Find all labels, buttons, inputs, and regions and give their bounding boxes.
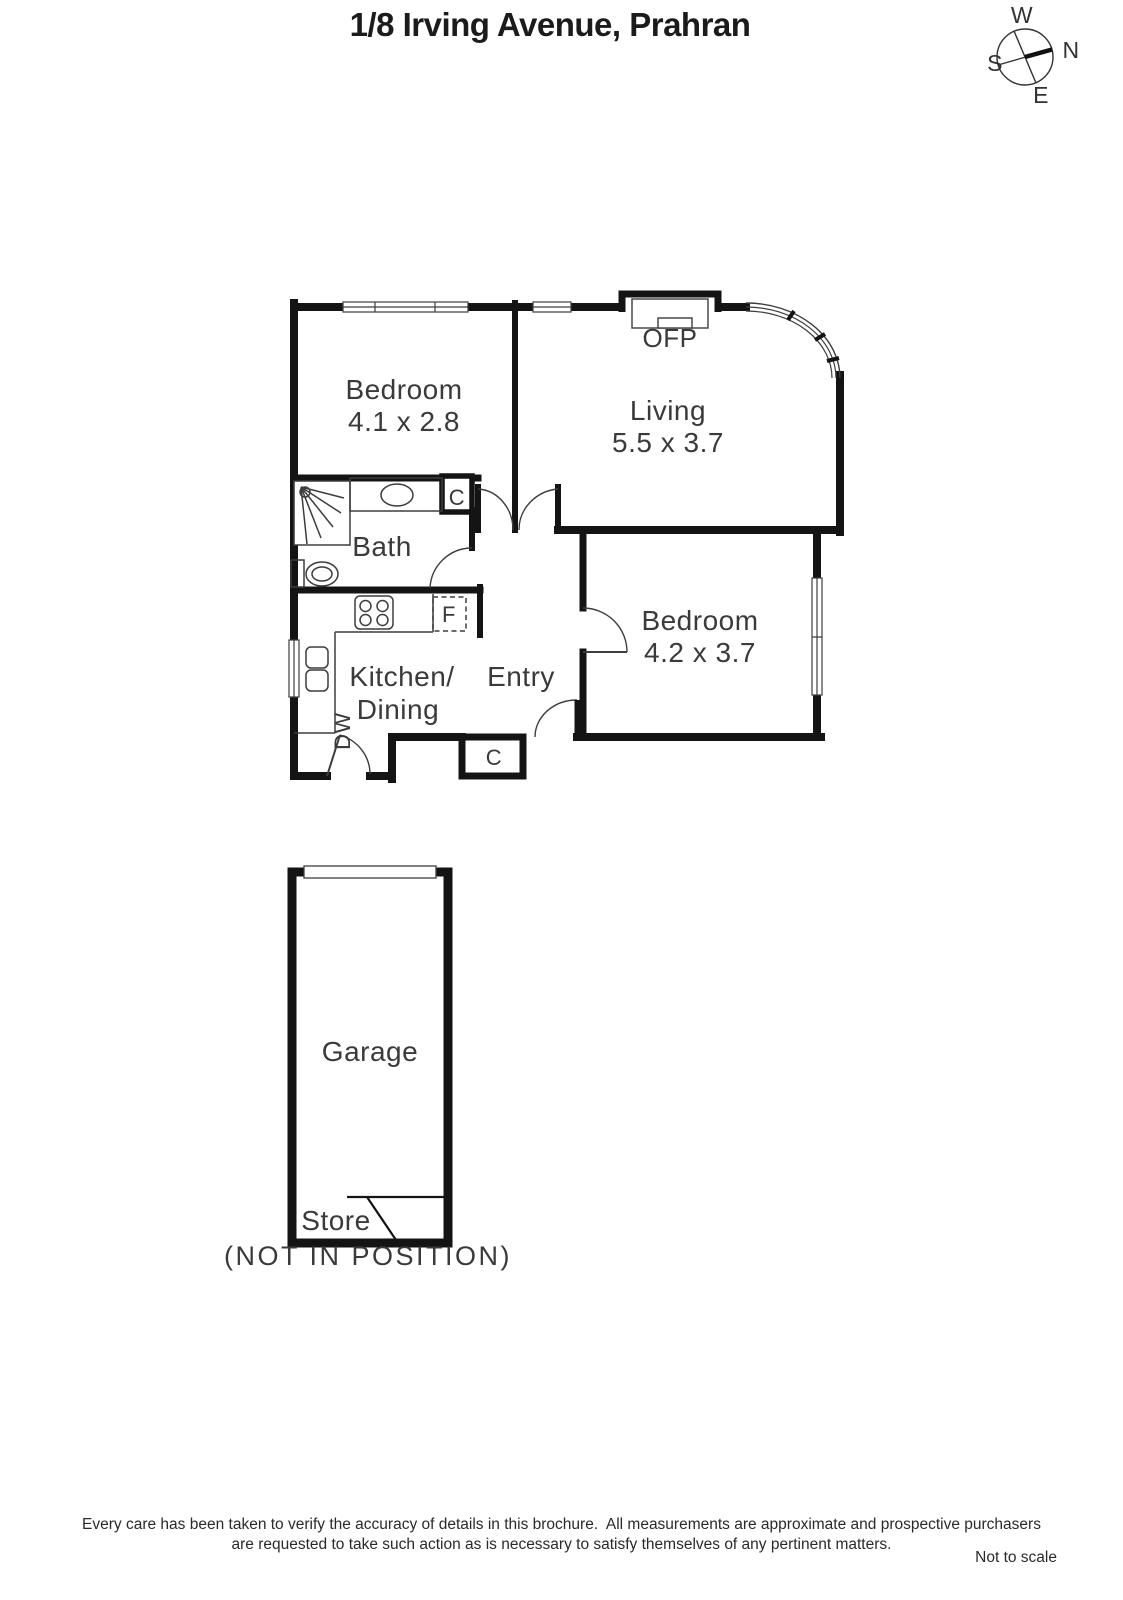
compass-east-label: E: [1033, 82, 1049, 108]
kitchen-label-line2: Dining: [357, 694, 439, 725]
entry-label: Entry: [487, 661, 555, 692]
floorplan-drawing: W N S E: [0, 0, 1123, 1600]
disclaimer-line-2: are requested to take such action as is …: [0, 1536, 1123, 1554]
compass-west-label: W: [1011, 2, 1033, 28]
not-to-scale-note: Not to scale: [975, 1549, 1057, 1567]
living-name-label: Living: [630, 395, 706, 426]
bath-closet-label: C: [449, 485, 465, 510]
double-door-left-arc: [478, 489, 513, 530]
vanity-sink-icon: [350, 478, 442, 511]
kitchen-window: [289, 640, 299, 697]
shower-icon: [294, 481, 350, 545]
compass-icon: W N S E: [987, 2, 1079, 108]
entry-closet-label: C: [486, 745, 502, 770]
dishwasher-label: DW: [330, 712, 355, 750]
double-door-right-arc: [519, 489, 558, 530]
garage-label: Garage: [322, 1036, 418, 1067]
living-dims-label: 5.5 x 3.7: [612, 427, 724, 458]
entry-door: [535, 700, 577, 737]
not-in-position-label: (NOT IN POSITION): [224, 1241, 512, 1271]
bedroom1-window: [343, 302, 468, 312]
curved-bay-window: [746, 303, 840, 378]
fridge-label: F: [442, 602, 456, 627]
kitchen-sink-icon: [306, 647, 328, 691]
store-label: Store: [301, 1205, 370, 1236]
toilet-icon: [291, 560, 338, 587]
bedroom2-window: [812, 578, 822, 695]
floorplan-page: 1/8 Irving Avenue, Prahran W N S E: [0, 0, 1123, 1600]
compass-north-label: N: [1062, 37, 1079, 63]
hall-window: [533, 302, 571, 312]
garage-door: [304, 866, 436, 878]
disclaimer-line-1: Every care has been taken to verify the …: [0, 1516, 1123, 1534]
bedroom2-name-label: Bedroom: [641, 605, 758, 636]
bedroom2-dims-label: 4.2 x 3.7: [644, 637, 756, 668]
kitchen-label-line1: Kitchen/: [349, 661, 454, 692]
bedroom2-door: [583, 608, 627, 652]
bath-label: Bath: [352, 531, 412, 562]
bedroom1-dims-label: 4.1 x 2.8: [348, 406, 460, 437]
bedroom1-name-label: Bedroom: [345, 374, 462, 405]
ofp-label: OFP: [643, 323, 698, 353]
cooktop-icon: [355, 596, 393, 629]
bath-door-arc: [430, 548, 472, 588]
compass-south-label: S: [987, 50, 1003, 76]
